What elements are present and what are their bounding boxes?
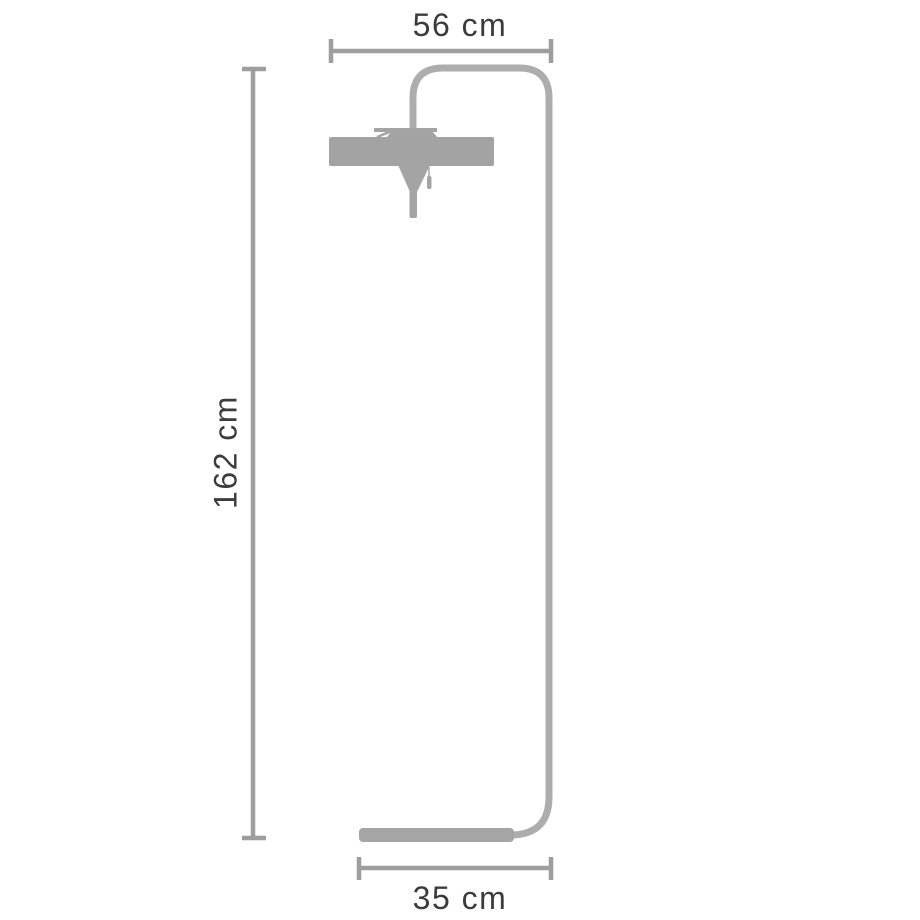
dimension-label-height: 162 cm xyxy=(208,395,245,509)
lamp-finial-stem xyxy=(410,190,418,218)
lamp-base-bar xyxy=(359,828,514,842)
lamp-pull-chain-bead xyxy=(427,176,432,189)
dimension-label-depth: 35 cm xyxy=(413,880,508,917)
floor-lamp-diagram xyxy=(0,0,920,920)
lamp-drawing-group xyxy=(329,68,549,842)
dimension-diagram-canvas: 56 cm 162 cm 35 cm xyxy=(0,0,920,920)
lamp-shade xyxy=(329,137,494,166)
dimension-label-width: 56 cm xyxy=(413,7,508,44)
lamp-arm-and-pole-tube xyxy=(413,68,549,835)
lamp-lower-cone xyxy=(398,165,430,192)
